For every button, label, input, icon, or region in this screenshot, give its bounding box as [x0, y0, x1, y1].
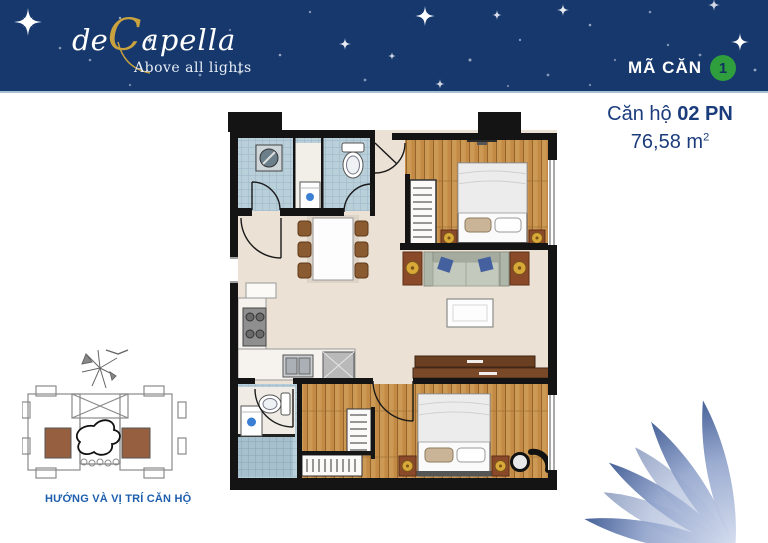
- unit-info: Căn hộ 02 PN 76,58 m2: [580, 103, 760, 154]
- double-bed-1-icon: [456, 163, 529, 247]
- compass-icon: [82, 350, 128, 388]
- unit-code-badge: 1: [710, 55, 736, 81]
- highlighted-unit-right: [122, 428, 150, 458]
- unit-code: MÃ CĂN 1: [628, 55, 736, 81]
- logo-prefix: de: [72, 23, 108, 57]
- sofa-icon: [424, 252, 509, 286]
- brand-tagline: Above all lights: [134, 60, 252, 76]
- brand-logo: deCapella: [72, 10, 236, 61]
- vanity-sink-icon: [256, 145, 282, 171]
- dining-table-icon: [298, 215, 368, 283]
- tv-cabinet-icon: [413, 356, 551, 378]
- unit-area-value: 76,58: [631, 131, 681, 153]
- fridge-icon: [323, 352, 354, 379]
- unit-area: 76,58 m2: [580, 131, 760, 154]
- unit-title-regular: Căn hộ: [607, 103, 672, 125]
- unit-area-exponent: 2: [703, 131, 709, 143]
- floor-plan-diagram: [227, 112, 561, 510]
- wardrobe-icon: [410, 180, 436, 244]
- unit-area-unit: m: [686, 131, 703, 153]
- courtyard-pool: [77, 420, 120, 466]
- header: deCapella Above all lights MÃ CĂN 1: [0, 0, 768, 93]
- logo-rest: apella: [141, 23, 236, 57]
- brochure-page: deCapella Above all lights MÃ CĂN 1 Căn …: [0, 0, 768, 543]
- double-bed-2-icon: [416, 394, 492, 476]
- toilet-icon: [342, 143, 364, 178]
- site-map-caption: HƯỚNG VÀ VỊ TRÍ CĂN HỘ: [45, 493, 191, 505]
- stove-icon: [243, 308, 266, 346]
- washing-machine-2-icon: [241, 406, 262, 436]
- logo-initial: C: [108, 10, 142, 61]
- unit-code-label: MÃ CĂN: [628, 58, 702, 78]
- coffee-table-icon: [447, 299, 493, 327]
- lotus-petals-icon: [583, 373, 768, 543]
- washing-machine-icon: [300, 182, 320, 211]
- toilet-2-icon: [259, 393, 290, 415]
- highlighted-unit-left: [45, 428, 71, 458]
- kitchen-sink-icon: [283, 355, 313, 377]
- site-map-diagram: [22, 346, 187, 488]
- unit-title: Căn hộ 02 PN: [580, 103, 760, 126]
- unit-title-bold: 02 PN: [677, 103, 733, 125]
